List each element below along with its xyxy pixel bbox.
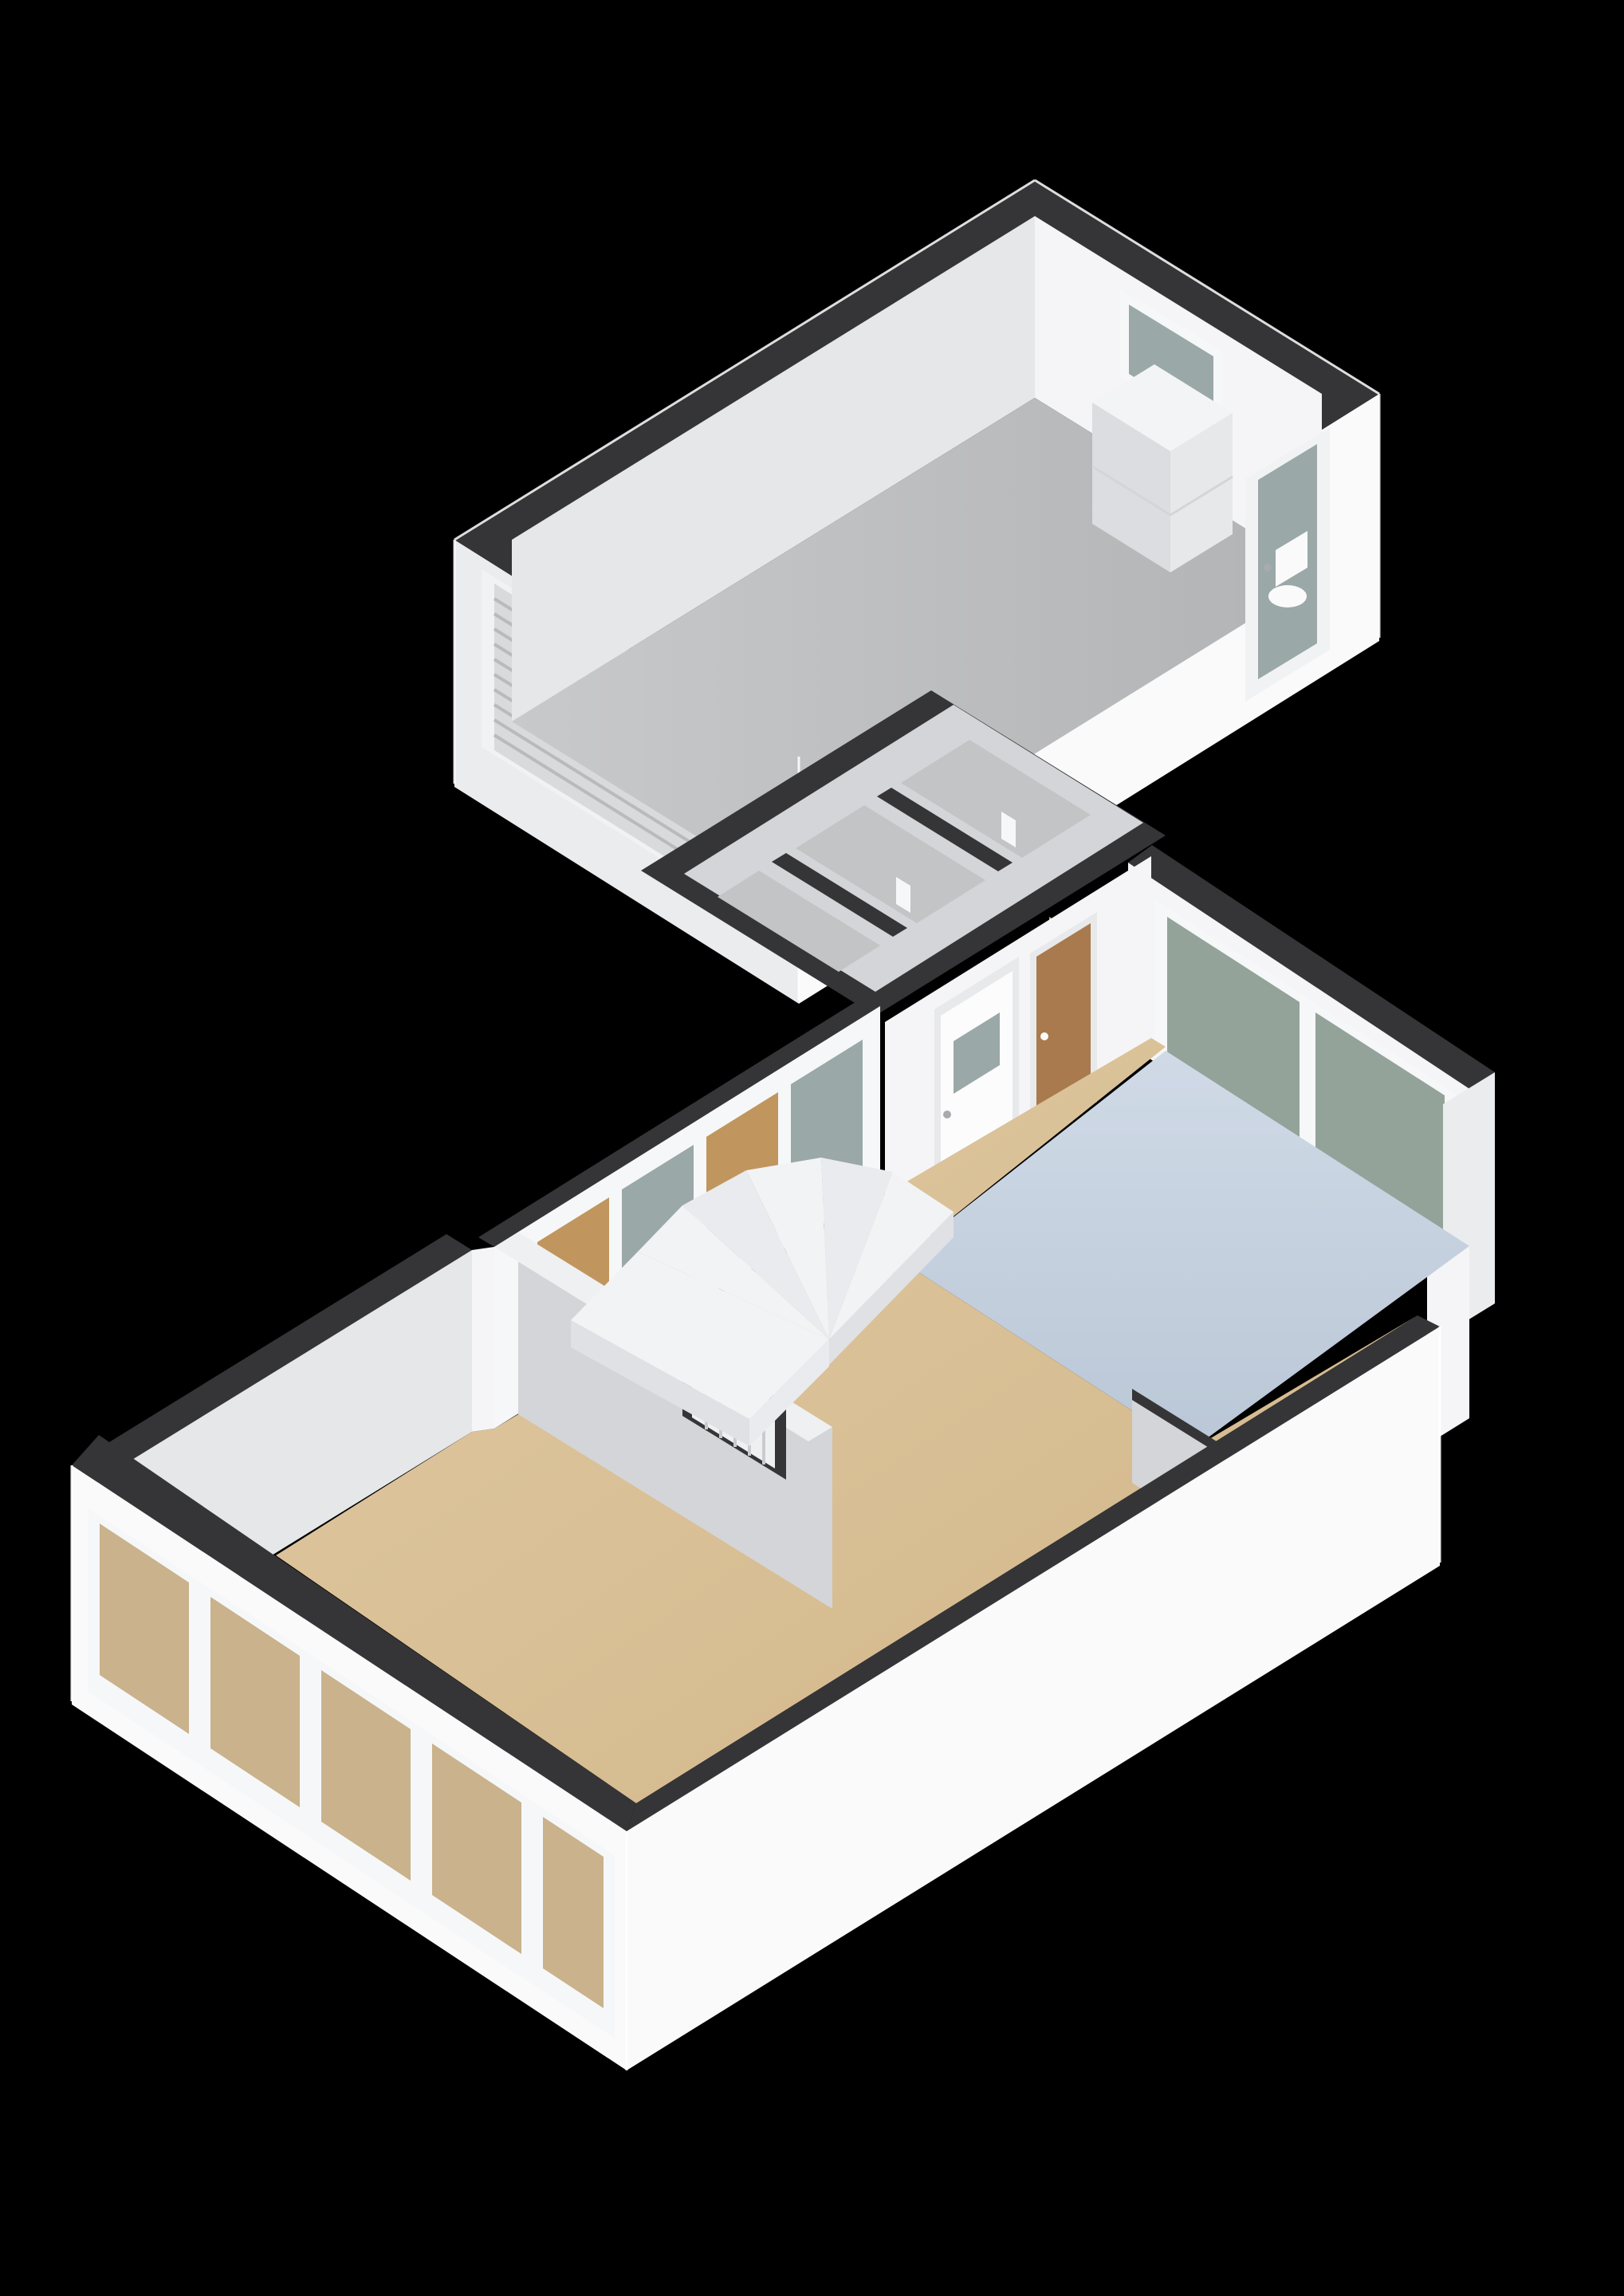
- door-handle-icon: [943, 1111, 951, 1119]
- door-handle-icon: [1040, 1032, 1048, 1040]
- floorplan-canvas: [0, 0, 1624, 2296]
- toilet-bowl: [1268, 585, 1307, 607]
- door-handle-icon: [1264, 564, 1272, 572]
- wall-junction-step: [472, 1247, 494, 1432]
- screenshot-root: [0, 0, 1624, 2296]
